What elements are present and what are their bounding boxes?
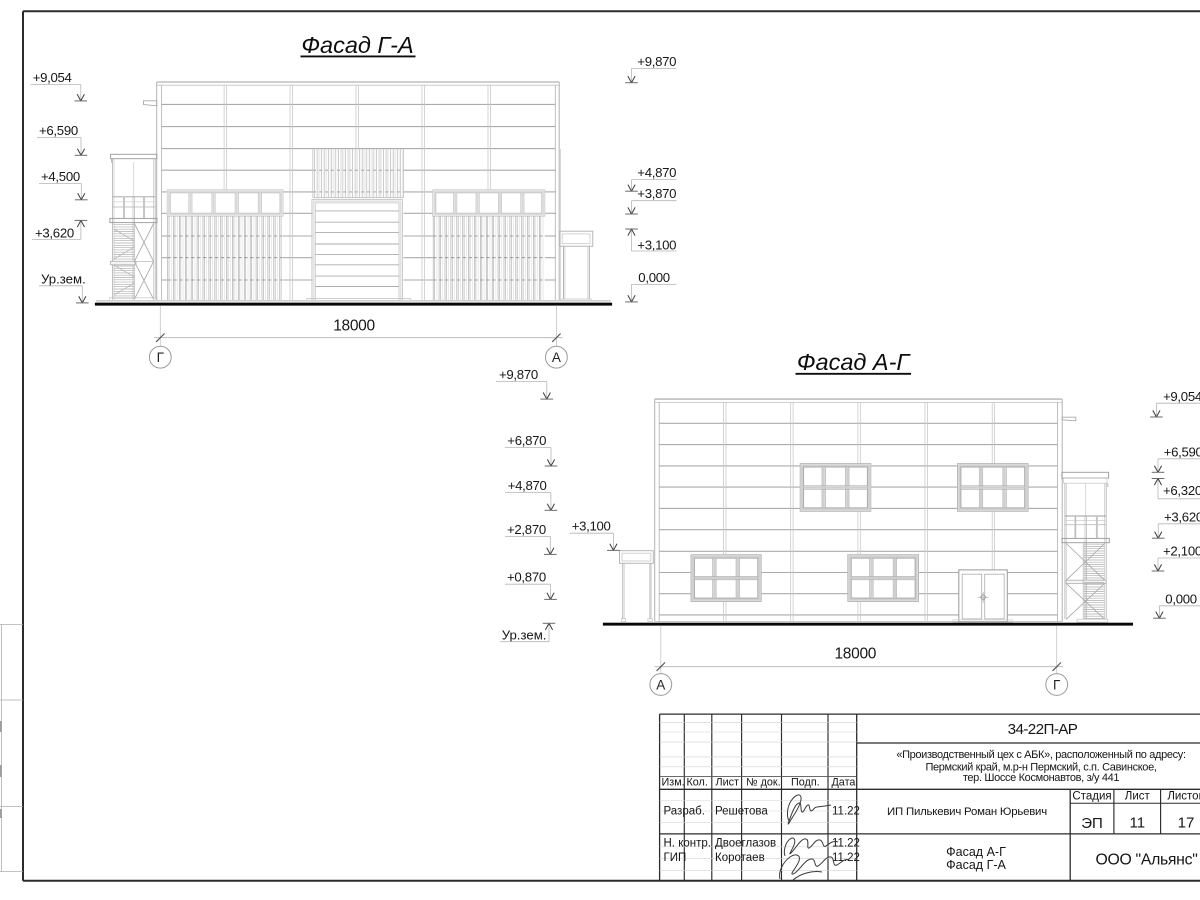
svg-text:Подп.: Подп. (791, 777, 820, 789)
svg-text:+6,590: +6,590 (1164, 444, 1200, 459)
svg-text:Лист: Лист (716, 777, 740, 789)
svg-text:11.22: 11.22 (832, 852, 860, 864)
svg-text:Н. контр.: Н. контр. (664, 837, 711, 849)
svg-text:Г: Г (1053, 677, 1061, 692)
svg-text:Ур.зем.: Ур.зем. (502, 628, 547, 643)
svg-text:ГИП: ГИП (664, 852, 687, 864)
svg-text:11.22: 11.22 (832, 805, 860, 817)
svg-text:+4,870: +4,870 (637, 165, 676, 180)
svg-text:А: А (552, 350, 561, 365)
svg-text:+4,500: +4,500 (41, 169, 80, 184)
svg-text:ООО "Альянс": ООО "Альянс" (1095, 852, 1197, 869)
svg-text:+3,620: +3,620 (1164, 509, 1200, 524)
svg-text:+9,870: +9,870 (499, 367, 538, 382)
svg-text:Лист: Лист (1125, 791, 1151, 803)
svg-text:+6,590: +6,590 (39, 123, 78, 138)
svg-text:Фасад А-Г: Фасад А-Г (946, 845, 1006, 859)
svg-text:Фасад А-Г: Фасад А-Г (797, 349, 912, 375)
svg-text:18000: 18000 (333, 318, 375, 335)
svg-text:Кол.: Кол. (687, 777, 708, 789)
svg-text:+9,870: +9,870 (637, 54, 676, 69)
svg-text:+0,870: +0,870 (507, 570, 546, 585)
svg-text:18000: 18000 (834, 646, 876, 663)
svg-text:+3,100: +3,100 (637, 237, 676, 252)
svg-text:Стадия: Стадия (1072, 791, 1111, 803)
svg-text:Разраб.: Разраб. (664, 805, 705, 817)
svg-text:+9,054: +9,054 (33, 70, 72, 85)
svg-text:ЭП: ЭП (1081, 815, 1103, 832)
svg-text:+2,100: +2,100 (1163, 544, 1200, 559)
svg-text:+9,054: +9,054 (1163, 389, 1200, 404)
svg-text:+2,870: +2,870 (507, 522, 546, 537)
svg-text:0,000: 0,000 (1165, 591, 1197, 606)
svg-text:Фасад Г-А: Фасад Г-А (301, 32, 413, 58)
svg-text:Листов: Листов (1167, 791, 1200, 803)
svg-text:Г: Г (157, 350, 165, 365)
svg-text:Фасад Г-А: Фасад Г-А (946, 858, 1006, 872)
svg-text:+3,620: +3,620 (35, 225, 74, 240)
svg-text:0,000: 0,000 (638, 270, 670, 285)
svg-text:+6,870: +6,870 (507, 433, 546, 448)
svg-text:ИП Пилькевич Роман Юрьевич: ИП Пилькевич Роман Юрьевич (887, 806, 1047, 818)
svg-text:11.22: 11.22 (832, 837, 860, 849)
svg-text:тер. Шоссе Космонавтов, з/у 44: тер. Шоссе Космонавтов, з/у 441 (963, 772, 1120, 784)
svg-text:34-22П-АР: 34-22П-АР (1008, 721, 1078, 738)
svg-text:+3,100: +3,100 (572, 519, 611, 534)
svg-text:Изм.: Изм. (662, 777, 685, 789)
svg-text:17: 17 (1178, 815, 1195, 832)
svg-text:Дата: Дата (832, 777, 856, 789)
svg-text:№ док.: № док. (746, 777, 781, 789)
svg-text:+3,870: +3,870 (637, 186, 676, 201)
svg-text:+6,320: +6,320 (1163, 483, 1200, 498)
svg-text:Ур.зем.: Ур.зем. (41, 271, 86, 286)
svg-text:Двоеглазов: Двоеглазов (715, 837, 776, 849)
svg-text:«Производственный цех с АБК»,: «Производственный цех с АБК», расположен… (896, 749, 1186, 761)
svg-text:+4,870: +4,870 (508, 478, 547, 493)
svg-text:Коротаев: Коротаев (715, 852, 765, 864)
svg-text:А: А (656, 677, 665, 692)
svg-text:11: 11 (1130, 815, 1146, 832)
svg-text:Решетова: Решетова (715, 805, 768, 817)
